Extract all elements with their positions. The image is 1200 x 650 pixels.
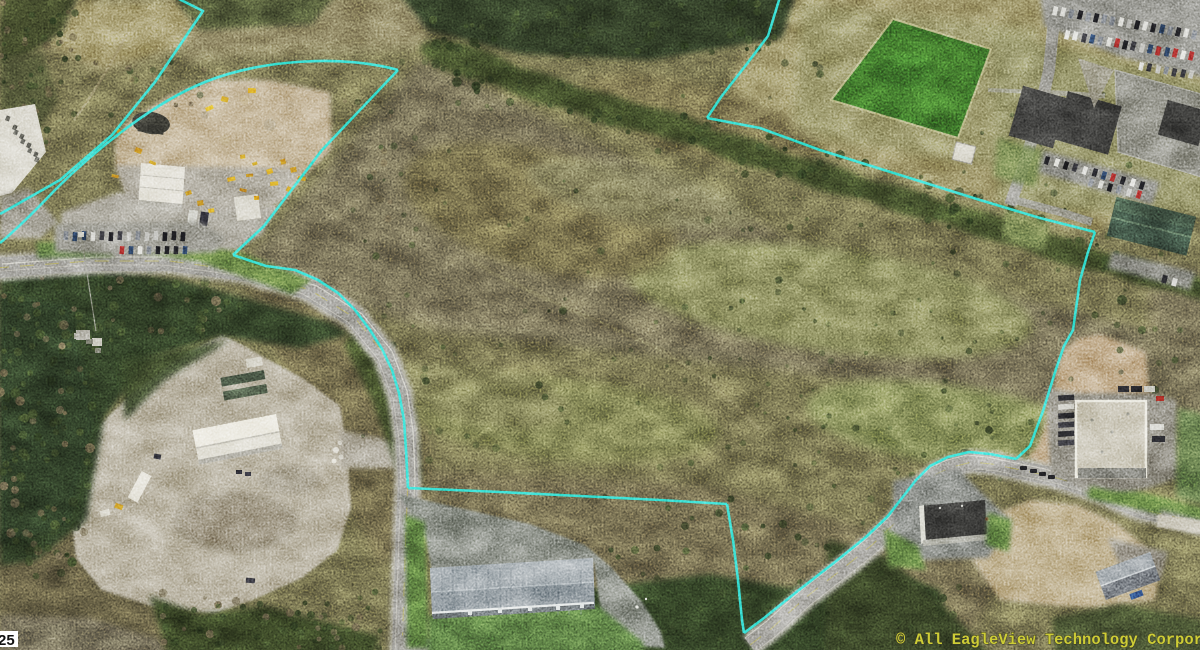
svg-text:© All EagleView Technology Cor: © All EagleView Technology Corpor bbox=[896, 631, 1200, 649]
svg-text:25: 25 bbox=[0, 632, 15, 649]
